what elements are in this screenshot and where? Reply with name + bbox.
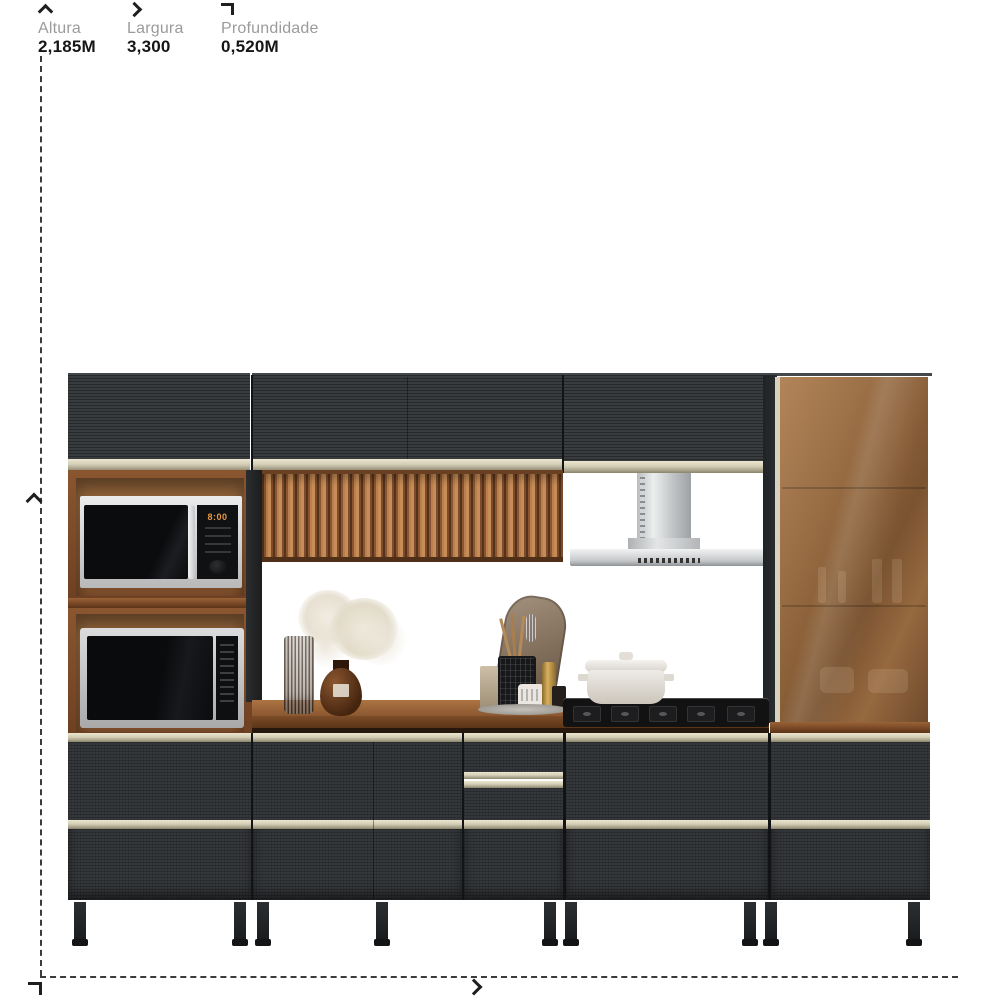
dutch-oven-pot bbox=[583, 652, 669, 708]
cabinet-leg bbox=[257, 902, 269, 942]
largura-label: Largura bbox=[127, 20, 184, 37]
gold-trim bbox=[566, 820, 768, 829]
burner bbox=[727, 706, 755, 722]
height-guide-line bbox=[40, 56, 42, 976]
base-door-front bbox=[68, 829, 252, 900]
microwave-knob bbox=[209, 560, 227, 574]
chevron-up-icon bbox=[38, 4, 54, 20]
pot-handle bbox=[578, 674, 588, 681]
microwave-keypad bbox=[220, 644, 234, 706]
burner bbox=[573, 706, 601, 722]
gold-trim bbox=[68, 733, 252, 742]
gold-trim bbox=[771, 733, 930, 742]
altura-label: Altura bbox=[38, 20, 81, 37]
dried-flowers bbox=[352, 615, 407, 665]
cabinet-leg bbox=[908, 902, 920, 942]
drawer-front bbox=[464, 742, 563, 772]
bowl-silhouette bbox=[820, 667, 854, 693]
cabinet-seam bbox=[562, 375, 564, 473]
width-guide-line bbox=[40, 976, 958, 978]
tower-side-panel bbox=[246, 470, 262, 702]
glassware-silhouette bbox=[838, 571, 846, 603]
microwave-handle bbox=[188, 505, 195, 579]
glassware-silhouette bbox=[818, 567, 826, 603]
gold-trim bbox=[566, 733, 768, 742]
hood-body bbox=[570, 549, 766, 566]
gold-trim bbox=[253, 820, 462, 829]
base-door-front bbox=[566, 742, 768, 820]
cabinet-leg bbox=[565, 902, 577, 942]
cabinet-top-edge bbox=[763, 373, 932, 376]
base-door-front bbox=[253, 829, 462, 900]
jar-pattern bbox=[521, 689, 541, 701]
cabinet-seam bbox=[407, 377, 408, 459]
slatted-wood-door bbox=[262, 470, 563, 562]
base-drawer-front bbox=[771, 742, 930, 820]
pot-lid-knob bbox=[619, 652, 633, 660]
gold-trim bbox=[253, 733, 462, 742]
vase-label bbox=[333, 684, 349, 697]
microwave-control-panel: 8:00 bbox=[197, 505, 238, 579]
profundidade-value: 0,520M bbox=[221, 37, 279, 57]
depth-corner-icon bbox=[221, 3, 234, 15]
microwave-upper: 8:00 bbox=[80, 496, 242, 588]
pot-body bbox=[587, 670, 665, 704]
burner bbox=[687, 706, 715, 722]
altura-value: 2,185M bbox=[38, 37, 96, 57]
product-dimension-diagram: Altura 2,185M Largura 3,300 Profundidade… bbox=[0, 0, 1000, 1000]
cabinet-seam bbox=[768, 733, 771, 900]
gold-trim bbox=[771, 820, 930, 829]
glass-cabinet-base-shelf bbox=[770, 722, 930, 733]
vase-ribs bbox=[284, 636, 314, 714]
cabinet-leg bbox=[234, 902, 246, 942]
bowl-silhouette bbox=[868, 669, 908, 693]
left-tower-upper-door bbox=[68, 375, 250, 460]
hood-upper-door bbox=[563, 375, 770, 462]
burner bbox=[611, 706, 639, 722]
base-drawer-front bbox=[68, 742, 252, 820]
pot-handle bbox=[664, 674, 674, 681]
cabinet-seam bbox=[251, 733, 253, 900]
profundidade-label: Profundidade bbox=[221, 20, 319, 37]
largura-value: 3,300 bbox=[127, 37, 171, 57]
ribbed-glass-vase bbox=[284, 636, 314, 714]
glassware-silhouette bbox=[872, 559, 882, 603]
gold-trim bbox=[563, 461, 770, 473]
round-tray bbox=[478, 704, 568, 715]
microwave-display: 8:00 bbox=[197, 512, 238, 522]
microwave-lower bbox=[80, 628, 244, 728]
cabinet-leg bbox=[544, 902, 556, 942]
dimension-altura: Altura 2,185M bbox=[38, 3, 96, 57]
cabinet-leg bbox=[765, 902, 777, 942]
cabinet-seam bbox=[462, 733, 464, 900]
gold-trim bbox=[464, 781, 563, 788]
microwave-control-panel bbox=[216, 636, 238, 720]
glassware-silhouette bbox=[892, 559, 902, 603]
base-door-front bbox=[566, 829, 768, 900]
gold-trim bbox=[464, 733, 563, 742]
cabinet-leg bbox=[376, 902, 388, 942]
hood-rivets bbox=[640, 477, 645, 543]
microwave-buttons bbox=[205, 527, 231, 557]
microwave-door bbox=[87, 636, 213, 720]
dimension-largura: Largura 3,300 bbox=[127, 3, 184, 57]
drawer-front bbox=[464, 788, 563, 820]
cabinet-seam bbox=[373, 742, 374, 898]
burner bbox=[649, 706, 677, 722]
glass-shelf-line bbox=[782, 605, 926, 607]
microwave-door bbox=[84, 505, 188, 579]
whisk bbox=[526, 614, 536, 642]
cabinet-leg bbox=[74, 902, 86, 942]
niche-shelf bbox=[68, 598, 252, 608]
base-door-front bbox=[253, 742, 462, 820]
amber-vase bbox=[320, 668, 362, 716]
bronze-glass-door bbox=[780, 377, 928, 723]
hood-controls bbox=[638, 558, 700, 563]
cabinet-leg bbox=[744, 902, 756, 942]
glass-shelf-line bbox=[782, 487, 926, 489]
canister bbox=[480, 666, 498, 710]
cabinet-seam bbox=[251, 375, 253, 471]
gold-trim bbox=[68, 820, 252, 829]
cabinet-seam bbox=[563, 733, 566, 900]
drawer-front bbox=[464, 829, 563, 900]
chevron-right-icon bbox=[127, 2, 143, 18]
depth-corner-marker-icon bbox=[28, 982, 42, 997]
dimension-profundidade: Profundidade 0,520M bbox=[221, 3, 319, 57]
width-arrow-icon bbox=[466, 980, 480, 995]
gold-trim bbox=[464, 772, 563, 779]
gold-trim bbox=[464, 820, 563, 829]
base-door-front bbox=[771, 829, 930, 900]
height-arrow-icon bbox=[26, 492, 40, 507]
